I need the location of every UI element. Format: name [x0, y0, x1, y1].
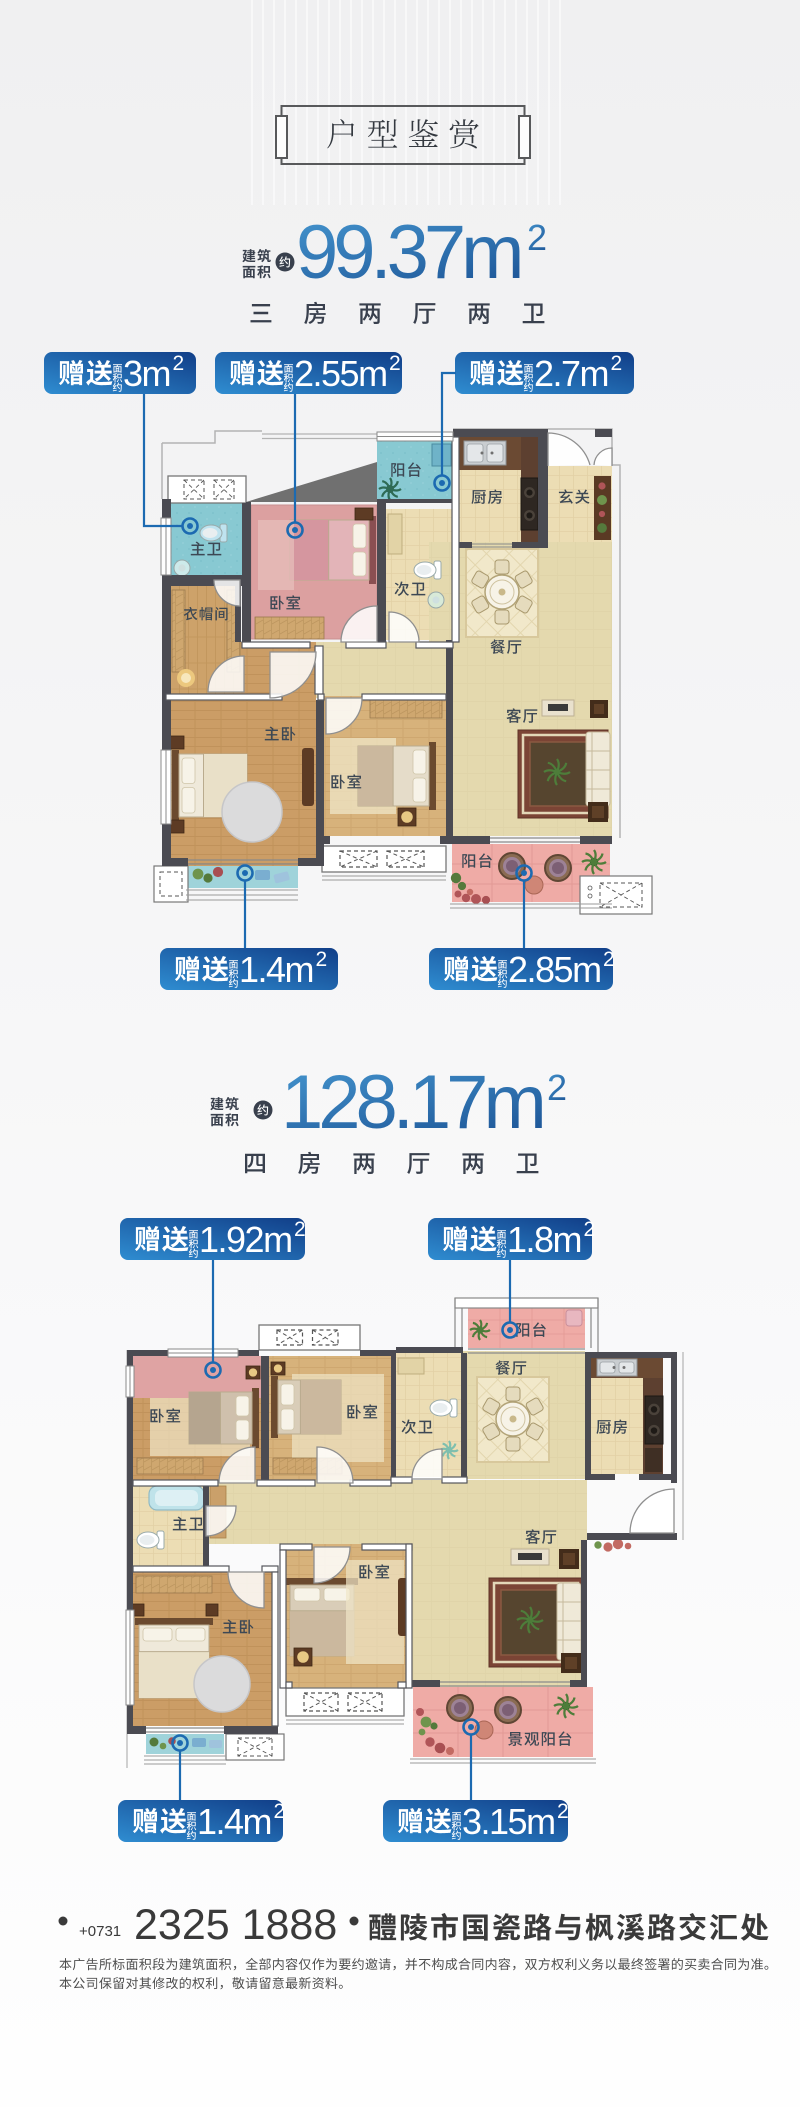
svg-text:2.85m: 2.85m	[508, 949, 601, 990]
svg-text:2: 2	[527, 217, 547, 258]
svg-text:2: 2	[557, 1800, 569, 1823]
svg-text:3.15m: 3.15m	[462, 1801, 555, 1842]
svg-text:2: 2	[294, 1218, 306, 1241]
svg-text:1.8m: 1.8m	[507, 1219, 581, 1260]
svg-text:2.55m: 2.55m	[294, 353, 387, 394]
svg-text:2: 2	[611, 352, 623, 375]
svg-text:2.7m: 2.7m	[534, 353, 608, 394]
svg-text:2: 2	[389, 352, 401, 375]
svg-text:2: 2	[173, 352, 185, 375]
svg-text:2: 2	[603, 948, 615, 971]
svg-text:+0731: +0731	[79, 1923, 121, 1940]
svg-text:3m: 3m	[123, 353, 170, 394]
svg-text:99.37m: 99.37m	[296, 210, 520, 295]
svg-text:1.4m: 1.4m	[239, 949, 313, 990]
svg-text:2325 1888: 2325 1888	[134, 1901, 337, 1949]
svg-text:2: 2	[584, 1218, 596, 1241]
svg-text:2: 2	[547, 1067, 567, 1108]
svg-text:1.92m: 1.92m	[199, 1219, 292, 1260]
svg-text:128.17m: 128.17m	[281, 1060, 542, 1145]
svg-text:1.4m: 1.4m	[197, 1801, 271, 1842]
svg-text:2: 2	[274, 1800, 286, 1823]
svg-text:2: 2	[316, 948, 328, 971]
